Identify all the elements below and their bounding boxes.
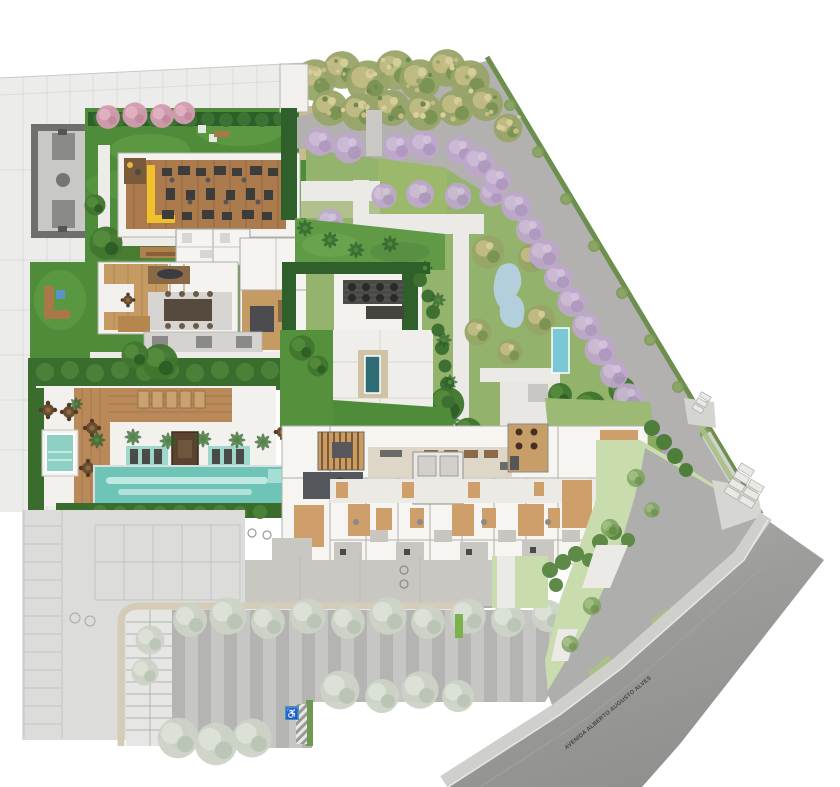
svg-text:♿: ♿ [286, 707, 298, 720]
